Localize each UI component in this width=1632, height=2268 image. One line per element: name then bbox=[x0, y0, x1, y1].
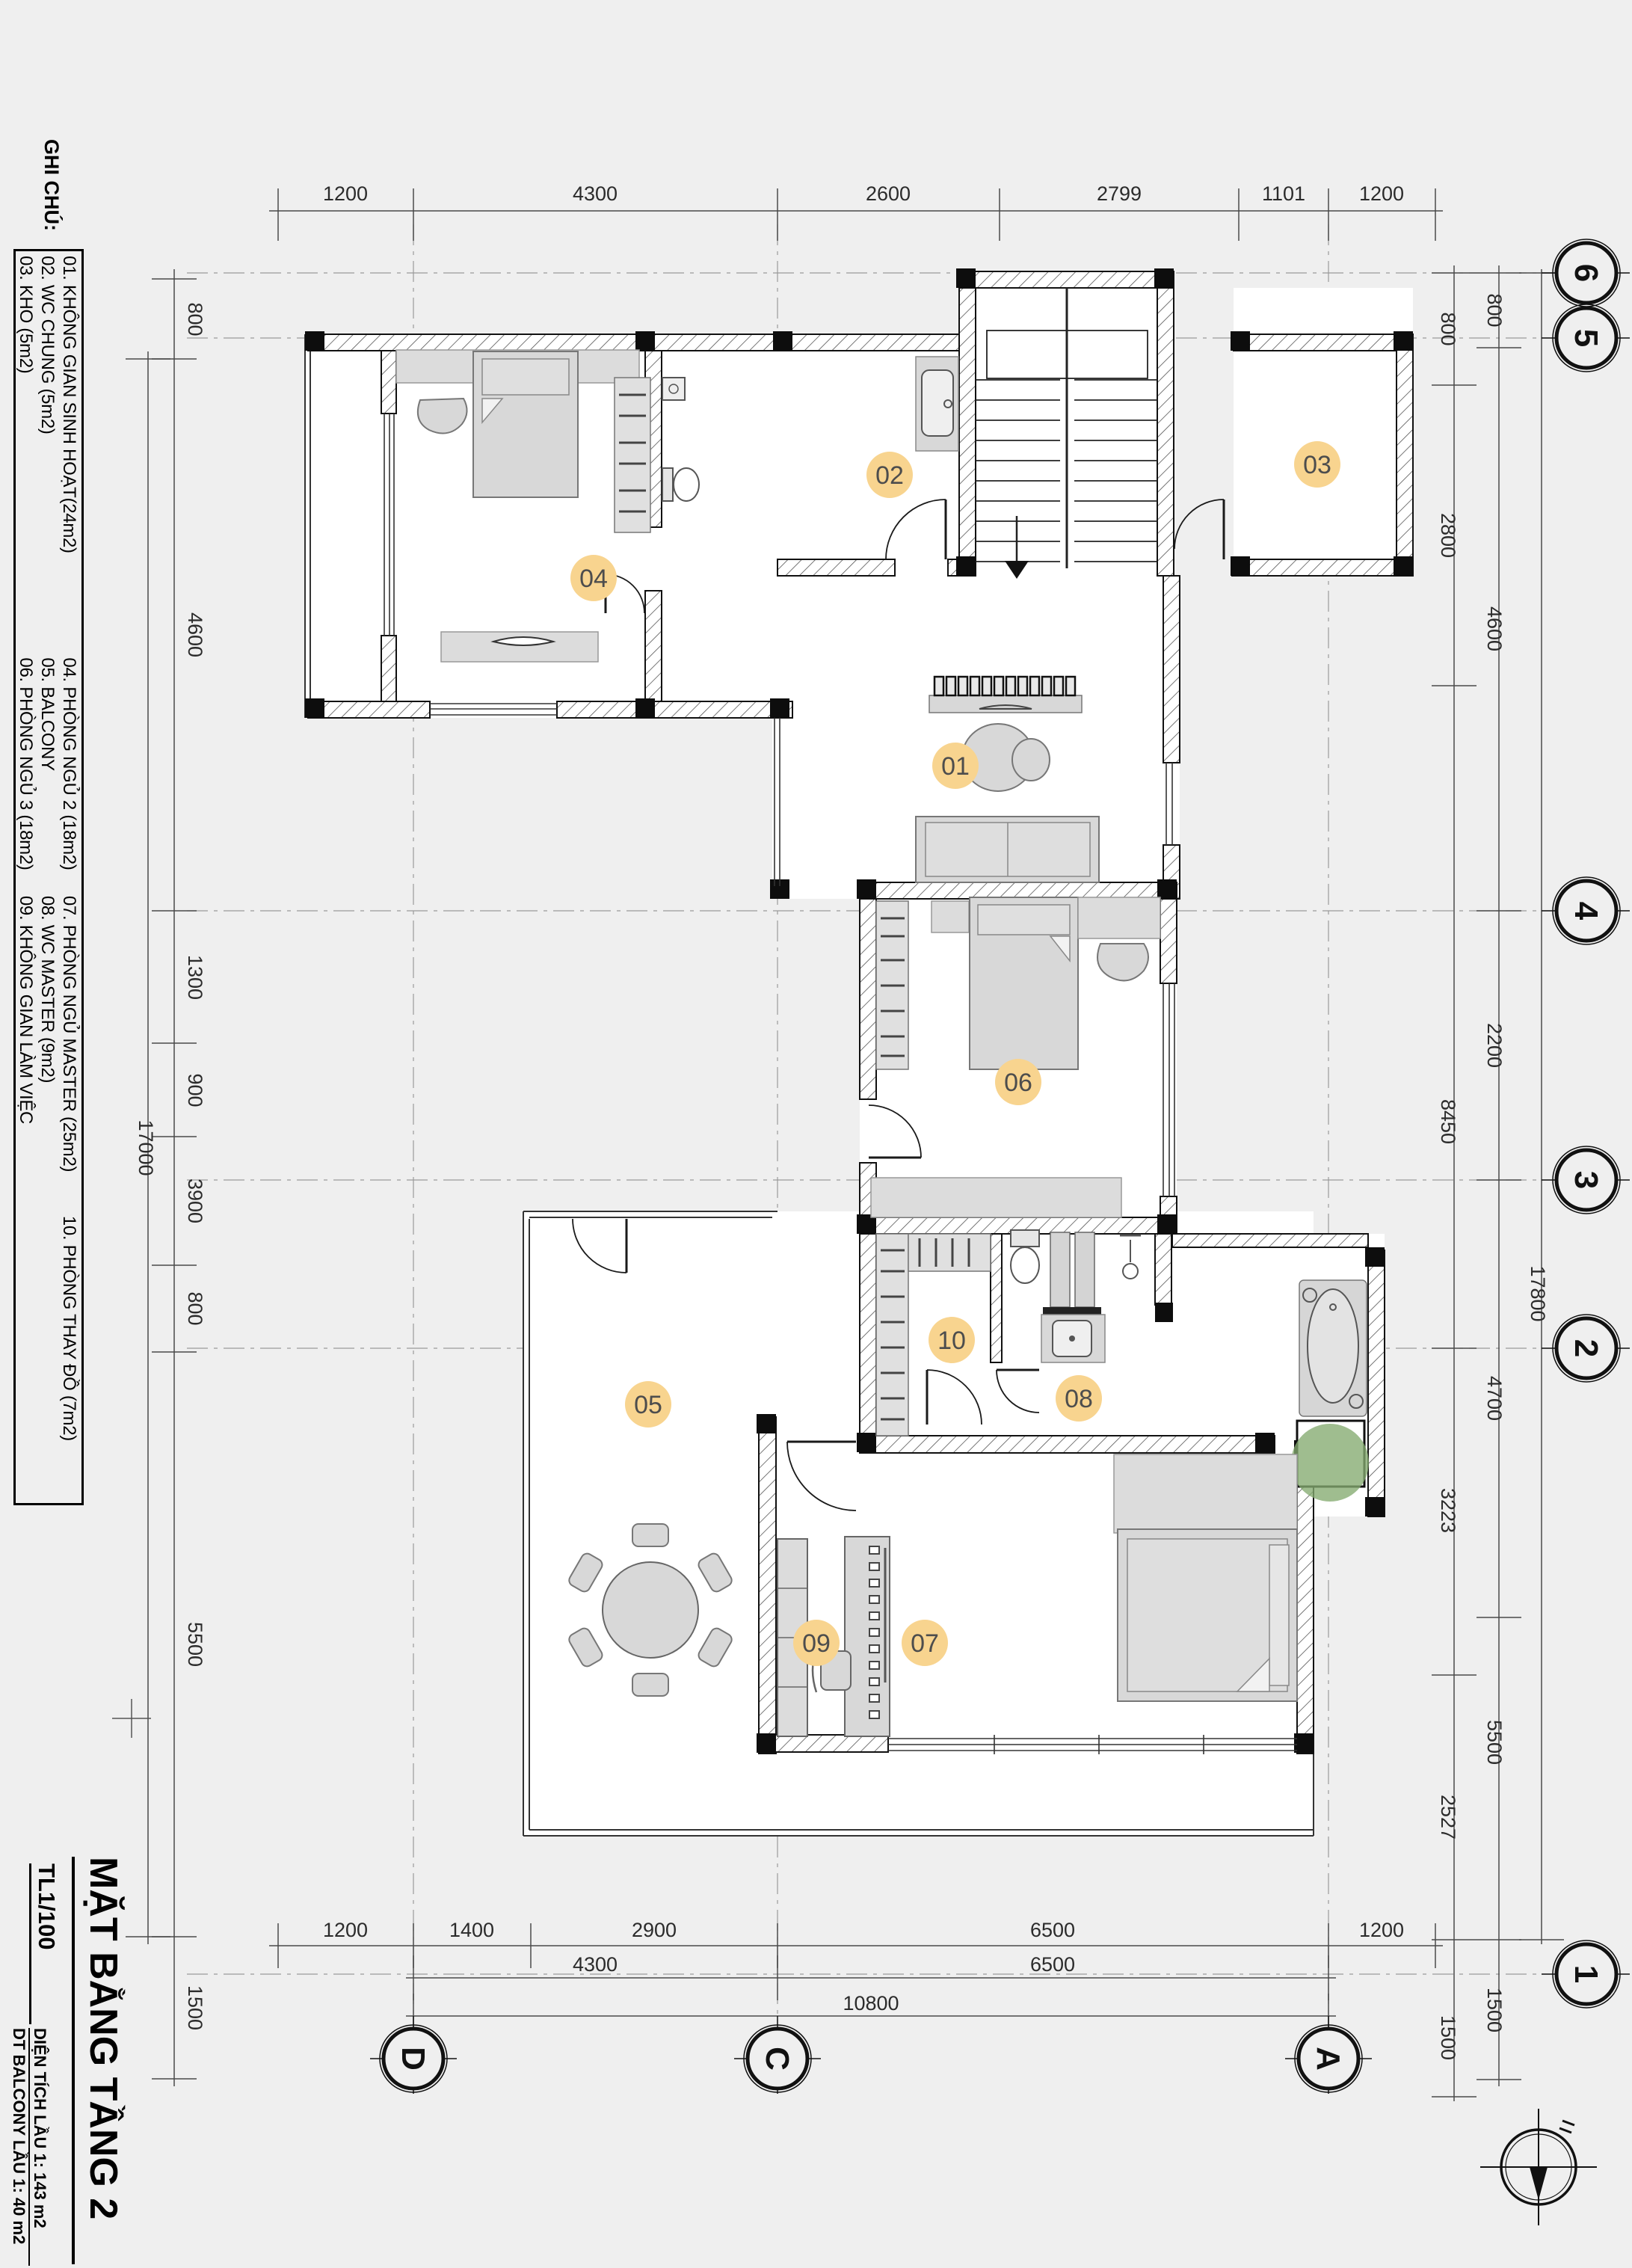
dim-label: 4700 bbox=[1483, 1376, 1506, 1421]
dim-label: 800 bbox=[1483, 293, 1506, 327]
dim-label: 1500 bbox=[1437, 2015, 1459, 2060]
legend-item-03: 03. KHO (5m2) bbox=[15, 256, 37, 657]
round-table-icon bbox=[603, 1562, 698, 1658]
room-badge-10: 10 bbox=[937, 1327, 966, 1355]
room-badge-01: 01 bbox=[941, 752, 970, 781]
floor-plan-sheet: 01 02 03 04 05 06 07 08 09 10 bbox=[0, 0, 1632, 2268]
dim-label: 1500 bbox=[1483, 1988, 1506, 2032]
grid-bubble-2: 2 bbox=[1542, 1315, 1630, 1382]
legend-item-06: 06. PHÒNG NGỦ 3 (18m2) bbox=[15, 657, 37, 895]
svg-text:2: 2 bbox=[1568, 1339, 1604, 1357]
dim-label: 800 bbox=[184, 302, 206, 336]
sink-icon bbox=[922, 370, 953, 436]
legend-item-10: 10. PHÒNG THAY ĐỒ (7m2) bbox=[58, 1216, 80, 1499]
dim-label: 1500 bbox=[184, 1985, 206, 2030]
dim-label: 4300 bbox=[573, 182, 618, 205]
grid-bubble-5: 5 bbox=[1542, 304, 1630, 372]
legend-item-08: 08. WC MASTER (9m2) bbox=[37, 896, 58, 1216]
legend-row-2: 02. WC CHUNG (5m2) 05. BALCONY 08. WC MA… bbox=[37, 256, 58, 1499]
svg-text:6: 6 bbox=[1568, 264, 1604, 282]
dim-label: 6500 bbox=[1030, 1919, 1075, 1941]
room-badge-02: 02 bbox=[875, 461, 904, 490]
legend-item-09: 09. KHÔNG GIAN LÀM VIỆC bbox=[15, 896, 37, 1216]
dim-label: 4600 bbox=[184, 612, 206, 657]
grid-bubble-D: D bbox=[370, 2016, 457, 2094]
legend-item-01: 01. KHÔNG GIAN SINH HOẠT(24m2) bbox=[58, 256, 80, 657]
room-badge-05: 05 bbox=[634, 1391, 662, 1419]
registration-mark bbox=[112, 1699, 151, 1738]
drawing-title: MẶT BẰNG TẦNG 2 bbox=[72, 1857, 126, 2264]
room-badge-06: 06 bbox=[1004, 1069, 1032, 1097]
svg-text:4: 4 bbox=[1568, 902, 1604, 921]
dim-label: 2600 bbox=[866, 182, 911, 205]
dim-label: 6500 bbox=[1030, 1953, 1075, 1976]
grid-bubble-6: 6 bbox=[1542, 239, 1630, 307]
room-badge-07: 07 bbox=[911, 1629, 939, 1658]
drawing-scale: TL1/100 bbox=[29, 1863, 60, 2024]
dim-label: 2527 bbox=[1437, 1795, 1459, 1840]
bathtub-plant bbox=[1291, 1280, 1369, 1502]
grid-bubble-4: 4 bbox=[1542, 877, 1630, 944]
dim-label: 1101 bbox=[1262, 182, 1305, 205]
dim-label: 2200 bbox=[1483, 1023, 1506, 1068]
grid-bubble-C: C bbox=[734, 2016, 821, 2094]
dim-label: 10800 bbox=[843, 1992, 899, 2015]
dim-label: 5500 bbox=[1483, 1720, 1506, 1765]
area-note-balcony: DT BALCONY LẦU 1: 40 m2 bbox=[9, 2028, 28, 2266]
dim-label: 4300 bbox=[573, 1953, 618, 1976]
room-badge-09: 09 bbox=[802, 1629, 831, 1658]
dim-label: 5500 bbox=[184, 1622, 206, 1667]
dim-label: 1200 bbox=[1359, 182, 1404, 205]
dim-label: 800 bbox=[1437, 312, 1459, 345]
svg-text:D: D bbox=[395, 2047, 431, 2071]
room-badge-08: 08 bbox=[1065, 1385, 1093, 1413]
grid-bubble-1: 1 bbox=[1542, 1940, 1630, 2008]
plant-icon bbox=[1291, 1424, 1369, 1502]
legend-row-1: 01. KHÔNG GIAN SINH HOẠT(24m2) 04. PHÒNG… bbox=[58, 256, 80, 1499]
dim-label: 8450 bbox=[1437, 1099, 1459, 1144]
svg-text:C: C bbox=[759, 2047, 795, 2071]
room-badge-03: 03 bbox=[1303, 451, 1331, 479]
legend-item-04: 04. PHÒNG NGỦ 2 (18m2) bbox=[58, 657, 80, 895]
dim-label: 1200 bbox=[323, 182, 368, 205]
dim-label: 900 bbox=[184, 1073, 206, 1107]
floor-plan-drawing: 01 02 03 04 05 06 07 08 09 10 bbox=[0, 0, 1632, 2268]
svg-text:3: 3 bbox=[1568, 1171, 1604, 1189]
dim-label: 1400 bbox=[449, 1919, 494, 1941]
dim-label: 3900 bbox=[184, 1178, 206, 1223]
legend-item-05: 05. BALCONY bbox=[37, 657, 58, 895]
dim-label: 2799 bbox=[1097, 182, 1142, 205]
legend-item-02: 02. WC CHUNG (5m2) bbox=[37, 256, 58, 657]
legend-box: 01. KHÔNG GIAN SINH HOẠT(24m2) 04. PHÒNG… bbox=[13, 249, 84, 1505]
dim-label: 17800 bbox=[1527, 1265, 1549, 1321]
svg-text:1: 1 bbox=[1568, 1965, 1604, 1983]
svg-text:5: 5 bbox=[1568, 329, 1604, 347]
toilet-icon bbox=[1011, 1247, 1039, 1283]
room-badge-04: 04 bbox=[579, 565, 608, 593]
dim-label: 3223 bbox=[1437, 1488, 1459, 1533]
dim-label: 800 bbox=[184, 1291, 206, 1325]
grid-bubble-A: A bbox=[1285, 2016, 1372, 2094]
area-note-floor: DIỆN TÍCH LẦU 1: 143 m2 bbox=[28, 2028, 49, 2266]
dim-label: 17000 bbox=[135, 1119, 157, 1176]
legend-row-3: 03. KHO (5m2) 06. PHÒNG NGỦ 3 (18m2) 09.… bbox=[15, 256, 37, 1499]
dim-label: 1200 bbox=[1359, 1919, 1404, 1941]
svg-text:A: A bbox=[1310, 2047, 1346, 2071]
bathtub-icon bbox=[1308, 1289, 1358, 1403]
dim-label: 2900 bbox=[632, 1919, 677, 1941]
dim-label: 4600 bbox=[1483, 606, 1506, 651]
legend-item-07: 07. PHÒNG NGỦ MASTER (25m2) bbox=[58, 896, 80, 1216]
grid-bubble-3: 3 bbox=[1542, 1146, 1630, 1214]
dim-label: 1300 bbox=[184, 955, 206, 1000]
dim-label: 2800 bbox=[1437, 513, 1459, 558]
dim-label: 1200 bbox=[323, 1919, 368, 1941]
toilet-icon bbox=[674, 468, 699, 501]
north-compass-icon bbox=[1480, 2109, 1597, 2225]
